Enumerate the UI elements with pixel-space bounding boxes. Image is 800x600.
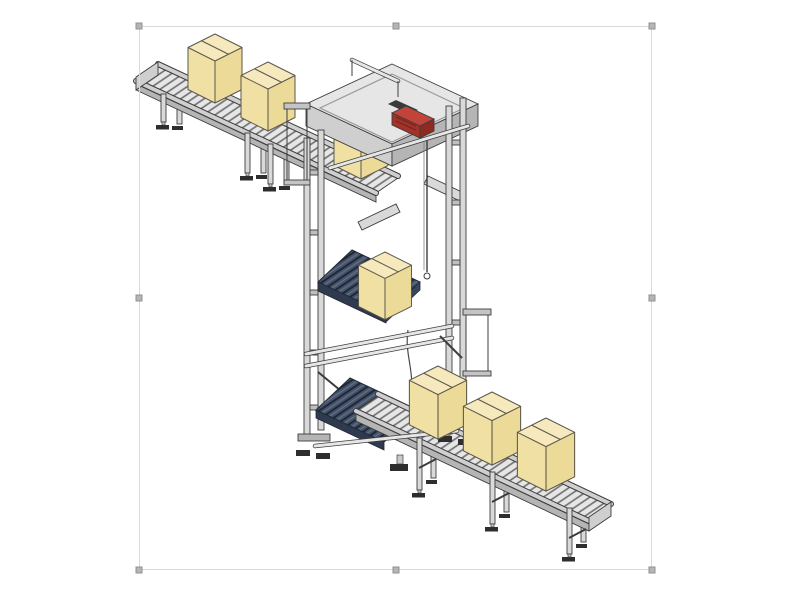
resize-handle-top-right[interactable]: [649, 23, 656, 30]
resize-handle-top-center[interactable]: [393, 23, 400, 30]
selected-image-frame[interactable]: [139, 26, 652, 570]
resize-handle-bottom-center[interactable]: [393, 567, 400, 574]
resize-handle-bottom-left[interactable]: [136, 567, 143, 574]
resize-handle-middle-left[interactable]: [136, 295, 143, 302]
resize-handle-top-left[interactable]: [136, 23, 143, 30]
resize-handle-middle-right[interactable]: [649, 295, 656, 302]
resize-handle-bottom-right[interactable]: [649, 567, 656, 574]
document-canvas: [0, 0, 800, 600]
